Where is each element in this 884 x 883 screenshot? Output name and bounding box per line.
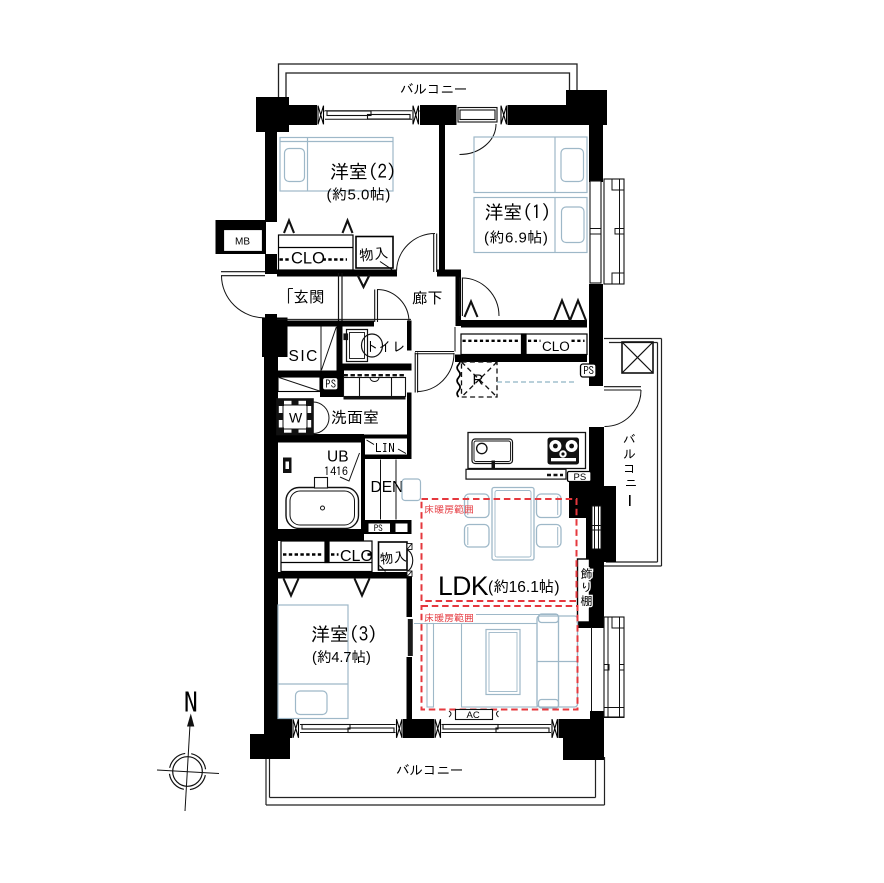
- svg-text:洋室(1): 洋室(1): [485, 203, 552, 222]
- svg-text:CLO: CLO: [542, 339, 570, 354]
- svg-text:DEN: DEN: [371, 479, 404, 496]
- svg-text:1416: 1416: [324, 466, 348, 478]
- svg-text:洋室(3): 洋室(3): [311, 625, 378, 644]
- svg-text:物入: 物入: [379, 549, 407, 566]
- svg-text:PS: PS: [326, 380, 337, 390]
- svg-text:洋室(2): 洋室(2): [330, 163, 397, 182]
- svg-text:バルコニー: バルコニー: [396, 763, 464, 777]
- svg-text:R: R: [473, 372, 484, 389]
- svg-text:(約16.1帖): (約16.1帖): [488, 579, 560, 596]
- svg-text:(約4.7帖): (約4.7帖): [312, 649, 371, 666]
- svg-text:AC: AC: [467, 710, 480, 721]
- svg-text:UB: UB: [327, 449, 349, 466]
- svg-text:トイレ: トイレ: [365, 340, 406, 354]
- svg-text:PS: PS: [374, 524, 384, 533]
- svg-text:玄関: 玄関: [294, 289, 325, 305]
- svg-text:バルコニ: バルコニ: [623, 433, 637, 490]
- svg-text:PS: PS: [583, 365, 594, 376]
- svg-text:(約6.9帖): (約6.9帖): [484, 230, 548, 247]
- svg-text:W: W: [289, 410, 303, 426]
- svg-text:物入: 物入: [358, 245, 388, 263]
- svg-text:CLO: CLO: [291, 250, 325, 268]
- svg-text:飾り棚: 飾り棚: [581, 568, 593, 607]
- svg-text:バルコニー: バルコニー: [400, 82, 468, 96]
- svg-text:(約5.0帖): (約5.0帖): [327, 187, 391, 204]
- svg-text:洗面室: 洗面室: [331, 409, 379, 425]
- svg-text:PS: PS: [574, 472, 587, 483]
- svg-text:SIC: SIC: [289, 348, 319, 365]
- svg-text:CLO: CLO: [340, 548, 373, 565]
- svg-text:LIN: LIN: [375, 442, 395, 455]
- svg-text:N: N: [184, 689, 198, 717]
- svg-text:床暖房範囲: 床暖房範囲: [424, 504, 474, 515]
- svg-text:廊下: 廊下: [412, 290, 443, 306]
- svg-text:LDK: LDK: [438, 571, 489, 601]
- svg-text:床暖房範囲: 床暖房範囲: [424, 613, 474, 624]
- svg-text:MB: MB: [235, 237, 250, 248]
